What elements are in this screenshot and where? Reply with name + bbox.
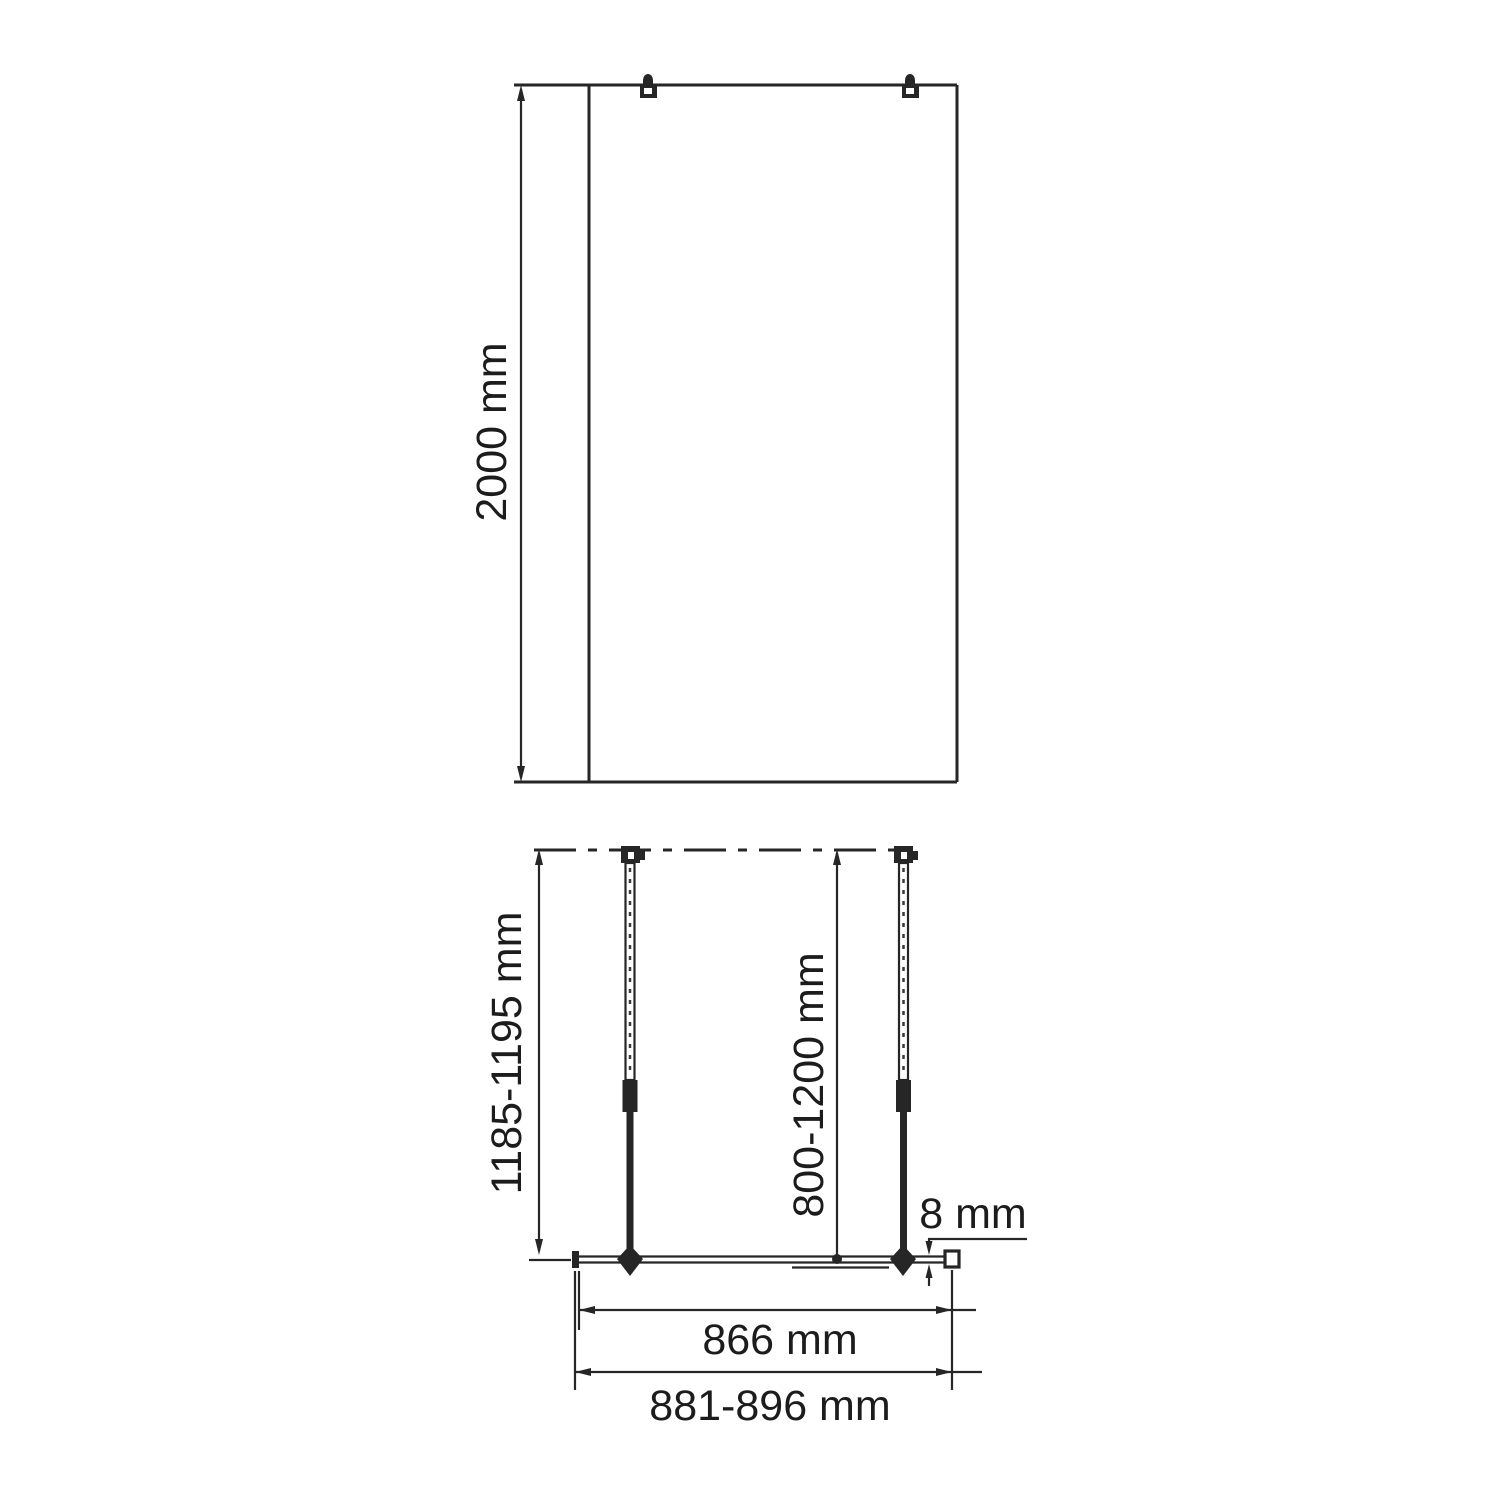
arrow-up-icon xyxy=(926,1264,933,1278)
end-bracket xyxy=(945,1251,959,1267)
wall-distance-label: 800-1200 mm xyxy=(785,952,833,1217)
bar-rod xyxy=(900,1112,907,1252)
bar-glass-clamp xyxy=(617,1245,643,1276)
glass-width-label: 866 mm xyxy=(702,1316,857,1364)
height-dimension-label: 2000 mm xyxy=(468,342,516,521)
bar-sleeve xyxy=(896,1080,911,1112)
clamp-slot xyxy=(906,88,914,94)
bar-glass-clamp xyxy=(890,1245,916,1276)
front-view: 2000 mm xyxy=(468,74,957,782)
arrow-down-icon xyxy=(517,766,525,782)
arrow-down-icon xyxy=(926,1241,933,1255)
overall-width-label: 881-896 mm xyxy=(649,1382,890,1430)
connector-tab xyxy=(640,851,645,860)
clamp-knob-icon xyxy=(643,74,653,85)
arrow-left-icon xyxy=(575,1368,591,1376)
bar-length-dimension: 1185-1195 mm xyxy=(483,849,571,1260)
bar-length-label: 1185-1195 mm xyxy=(483,912,531,1195)
support-bar-left xyxy=(617,846,645,1276)
connector-slot xyxy=(628,852,634,859)
arrow-left-icon xyxy=(579,1306,595,1314)
plan-view: 1185-1195 mm 800-1200 mm 8 mm xyxy=(483,846,1027,1430)
technical-drawing-canvas: 2000 mm xyxy=(0,0,1500,1500)
glass-thickness-dimension: 8 mm xyxy=(919,1190,1027,1286)
clamp-slot xyxy=(644,88,652,94)
glass-thickness-label: 8 mm xyxy=(919,1190,1027,1238)
clamp-knob-icon xyxy=(905,74,915,85)
dimension-end-dot xyxy=(832,1254,842,1264)
bar-rod xyxy=(627,1112,634,1252)
support-bar-right xyxy=(890,846,918,1276)
top-clamp-right xyxy=(902,74,919,98)
connector-slot xyxy=(901,852,907,859)
height-dimension: 2000 mm xyxy=(468,85,525,782)
overall-width-dimension: 881-896 mm xyxy=(575,1368,982,1430)
arrow-down-icon xyxy=(535,1239,543,1255)
top-clamp-left xyxy=(640,74,657,98)
shower-screen-diagram: 2000 mm xyxy=(0,0,1500,1500)
bar-sleeve xyxy=(623,1080,638,1112)
arrow-right-icon xyxy=(936,1306,952,1314)
arrow-up-icon xyxy=(517,85,525,101)
connector-tab xyxy=(913,851,918,860)
wall-profile xyxy=(572,1251,579,1268)
wall-distance-dimension: 800-1200 mm xyxy=(785,849,889,1268)
arrow-right-icon xyxy=(936,1368,952,1376)
